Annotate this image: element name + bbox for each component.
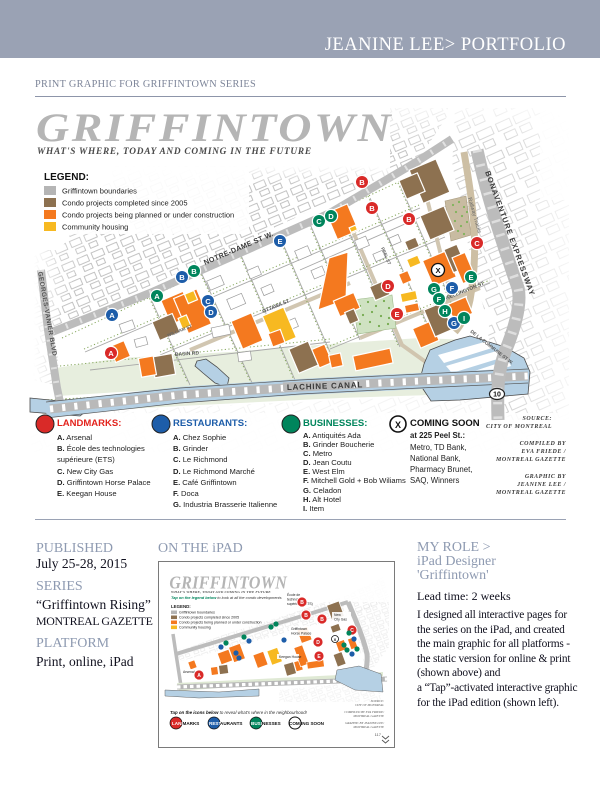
svg-text:MONTREAL GAZETTE: MONTREAL GAZETTE	[352, 725, 384, 729]
svg-text:Condo projects completed since: Condo projects completed since 2005	[62, 199, 188, 208]
svg-text:C: C	[205, 297, 211, 306]
svg-text:A: A	[154, 292, 160, 301]
svg-text:E: E	[468, 273, 473, 282]
svg-text:X: X	[334, 637, 337, 642]
svg-text:F: F	[450, 284, 455, 293]
svg-text:Community housing: Community housing	[62, 223, 128, 232]
svg-text:10: 10	[493, 392, 501, 399]
svg-text:Condo projects being planned o: Condo projects being planned or under co…	[62, 211, 234, 220]
svg-text:New: New	[334, 613, 341, 617]
svg-text:117: 117	[375, 732, 382, 737]
svg-text:B: B	[406, 215, 412, 224]
svg-text:Condo projects being planned o: Condo projects being planned or under co…	[179, 621, 262, 625]
svg-text:MARKS: MARKS	[183, 721, 200, 726]
svg-text:BUSI: BUSI	[251, 721, 262, 726]
svg-text:Keegan House: Keegan House	[279, 655, 302, 659]
svg-text:AURANTS: AURANTS	[220, 721, 242, 726]
svg-text:G: G	[451, 319, 457, 328]
svg-text:WHAT'S WHERE, TODAY AND COMING: WHAT'S WHERE, TODAY AND COMING IN THE FU…	[171, 590, 271, 594]
svg-text:NESSES: NESSES	[262, 721, 281, 726]
svg-text:LEGEND:: LEGEND:	[171, 604, 191, 609]
svg-text:Griffintown boundaries: Griffintown boundaries	[62, 187, 137, 196]
svg-text:Arsenal: Arsenal	[183, 670, 195, 674]
svg-text:E: E	[394, 310, 399, 319]
svg-text:D: D	[328, 212, 334, 221]
svg-text:City Gas: City Gas	[334, 618, 347, 622]
svg-text:A: A	[109, 311, 115, 320]
svg-text:École de: École de	[287, 592, 300, 597]
svg-text:B: B	[359, 178, 365, 187]
svg-text:F: F	[437, 295, 442, 304]
svg-text:B: B	[191, 267, 197, 276]
svg-text:Community housing: Community housing	[179, 626, 211, 630]
svg-text:MONTREAL GAZETTE: MONTREAL GAZETTE	[352, 714, 384, 718]
svg-text:Griffintown boundaries: Griffintown boundaries	[179, 611, 215, 615]
svg-text:Horse Palace: Horse Palace	[291, 632, 311, 636]
svg-text:A: A	[197, 673, 201, 679]
svg-text:CITY OF MONTREAL: CITY OF MONTREAL	[355, 703, 384, 707]
svg-text:ING SOON: ING SOON	[301, 721, 325, 726]
svg-text:D: D	[208, 308, 214, 317]
svg-text:X: X	[435, 266, 440, 275]
svg-text:Condo projects completed since: Condo projects completed since 2005	[179, 616, 239, 620]
svg-text:I: I	[463, 314, 465, 323]
svg-text:A: A	[108, 349, 114, 358]
svg-text:D: D	[316, 640, 320, 646]
svg-text:Griffintown: Griffintown	[291, 627, 307, 631]
svg-text:COM: COM	[289, 721, 300, 726]
svg-text:B: B	[300, 600, 304, 606]
svg-text:C: C	[474, 239, 480, 248]
svg-text:D: D	[385, 282, 391, 291]
svg-text:B: B	[369, 204, 375, 213]
svg-text:Tap on the legend below to loo: Tap on the legend below to look at all t…	[171, 595, 282, 600]
svg-text:B: B	[304, 613, 308, 619]
svg-text:E: E	[277, 237, 282, 246]
svg-text:LEGEND:: LEGEND:	[44, 172, 89, 183]
svg-text:H: H	[442, 307, 447, 316]
svg-text:C: C	[316, 217, 322, 226]
svg-text:B: B	[320, 617, 324, 623]
svg-text:B: B	[179, 273, 185, 282]
svg-text:Tap on the icons below to reve: Tap on the icons below to reveal what's …	[170, 710, 308, 715]
